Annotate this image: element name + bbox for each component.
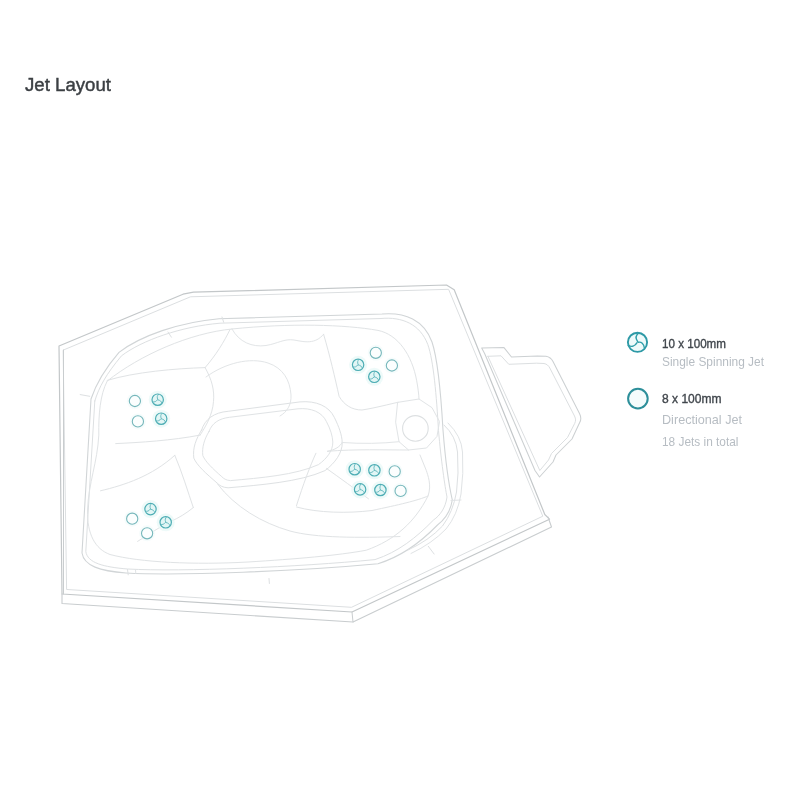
svg-text:Single Spinning Jet: Single Spinning Jet: [662, 355, 765, 369]
svg-text:18 Jets in total: 18 Jets in total: [662, 435, 739, 449]
svg-text:Jet Layout: Jet Layout: [25, 74, 112, 95]
svg-text:Directional Jet: Directional Jet: [662, 413, 743, 427]
svg-text:10 x 100mm: 10 x 100mm: [662, 337, 726, 351]
svg-text:8 x 100mm: 8 x 100mm: [662, 392, 722, 406]
